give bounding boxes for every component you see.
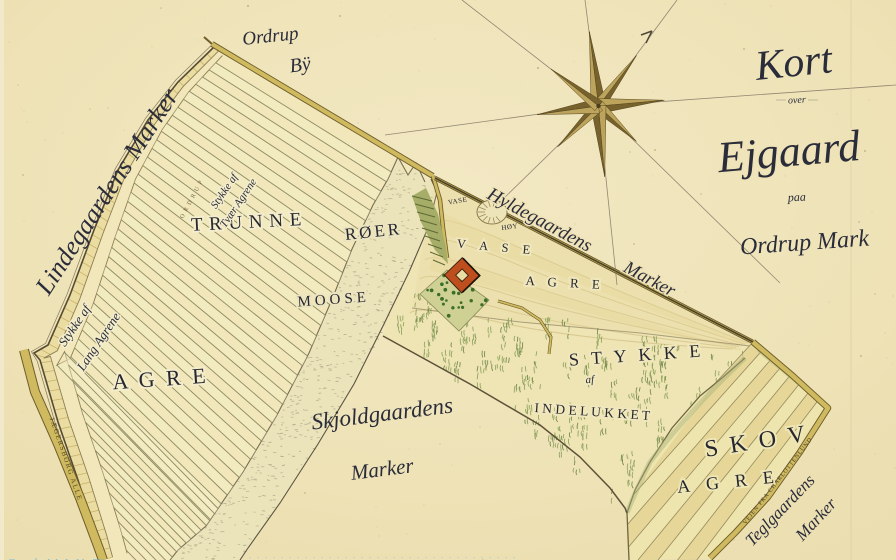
svg-text:Kort: Kort [752,36,836,90]
svg-text:over: over [788,95,806,107]
svg-text:Bÿ: Bÿ [288,53,312,78]
svg-text:paa: paa [786,190,806,205]
